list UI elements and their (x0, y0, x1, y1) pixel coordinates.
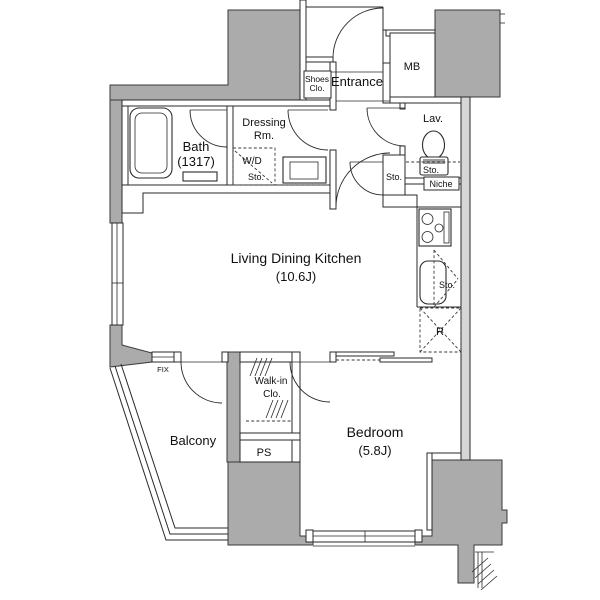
wall-bedroom-east (427, 453, 432, 530)
wall-bath-west (122, 106, 128, 185)
bedroom-south-window (313, 531, 415, 542)
floorplan-image: Bath (1317) Dressing Rm. W/D Sto. Shoes … (0, 0, 600, 600)
balcony-east-wall (227, 352, 240, 462)
balcony-door-jamb-left (174, 352, 181, 362)
label-kitchen-sto: Sto. (439, 280, 455, 290)
sliding-door-panel-2 (380, 358, 432, 362)
wall-entrance-left (306, 57, 333, 62)
ldk-west-window (112, 223, 123, 325)
wall-walkin-east (292, 352, 300, 462)
wall-mb-south (390, 97, 461, 103)
label-bedroom-size: (5.8J) (358, 443, 391, 458)
label-shoes-clo: Clo. (309, 83, 324, 93)
wall-kitchen-north (383, 195, 417, 207)
bedroom-window-jamb-left (306, 530, 313, 542)
sliding-door-panel-1 (336, 352, 394, 356)
label-fix: FIX (157, 365, 169, 374)
stove-icon (419, 209, 451, 246)
label-bath: Bath (183, 139, 210, 154)
label-ldk-size: (10.6J) (276, 269, 316, 284)
bedroom-window-jamb-right (415, 530, 422, 542)
label-wd: W/D (242, 156, 261, 167)
label-lav-sto: Sto. (423, 165, 439, 175)
label-walkin-clo: Clo. (263, 389, 281, 400)
label-hall-sto: Sto. (386, 172, 402, 182)
wall-hall-west-lower (330, 150, 336, 209)
label-dressing-rm: Rm. (254, 130, 274, 142)
label-walkin: Walk-in (255, 376, 288, 387)
left-wall-upper (110, 100, 122, 223)
label-ps: PS (257, 447, 272, 459)
bedroom-door-jamb (330, 352, 336, 362)
label-dressing: Dressing (242, 117, 285, 129)
wall-lav-west-jamb-bottom (400, 146, 405, 155)
label-niche: Niche (429, 179, 452, 189)
bath-step (183, 172, 217, 181)
wall-ps-north (240, 433, 300, 440)
vanity-icon (278, 157, 330, 185)
meter-box-pillar (435, 10, 500, 97)
bottom-left-pillar (228, 462, 313, 545)
balcony-door-jamb-right (222, 352, 228, 362)
label-bath-size: (1317) (177, 154, 215, 169)
label-ldk: Living Dining Kitchen (231, 250, 362, 266)
wall-top-row (122, 100, 331, 106)
right-outer-wall (461, 97, 470, 460)
label-bedroom: Bedroom (347, 424, 404, 440)
label-mb: MB (404, 61, 421, 73)
label-entrance: Entrance (331, 74, 383, 89)
label-refrigerator: R (436, 326, 444, 338)
label-balcony: Balcony (170, 433, 217, 448)
label-lav: Lav. (423, 113, 443, 125)
wall-entrance-right (383, 57, 390, 103)
wall-bath-dressing (227, 106, 233, 187)
label-wd-sto: Sto. (248, 172, 264, 182)
